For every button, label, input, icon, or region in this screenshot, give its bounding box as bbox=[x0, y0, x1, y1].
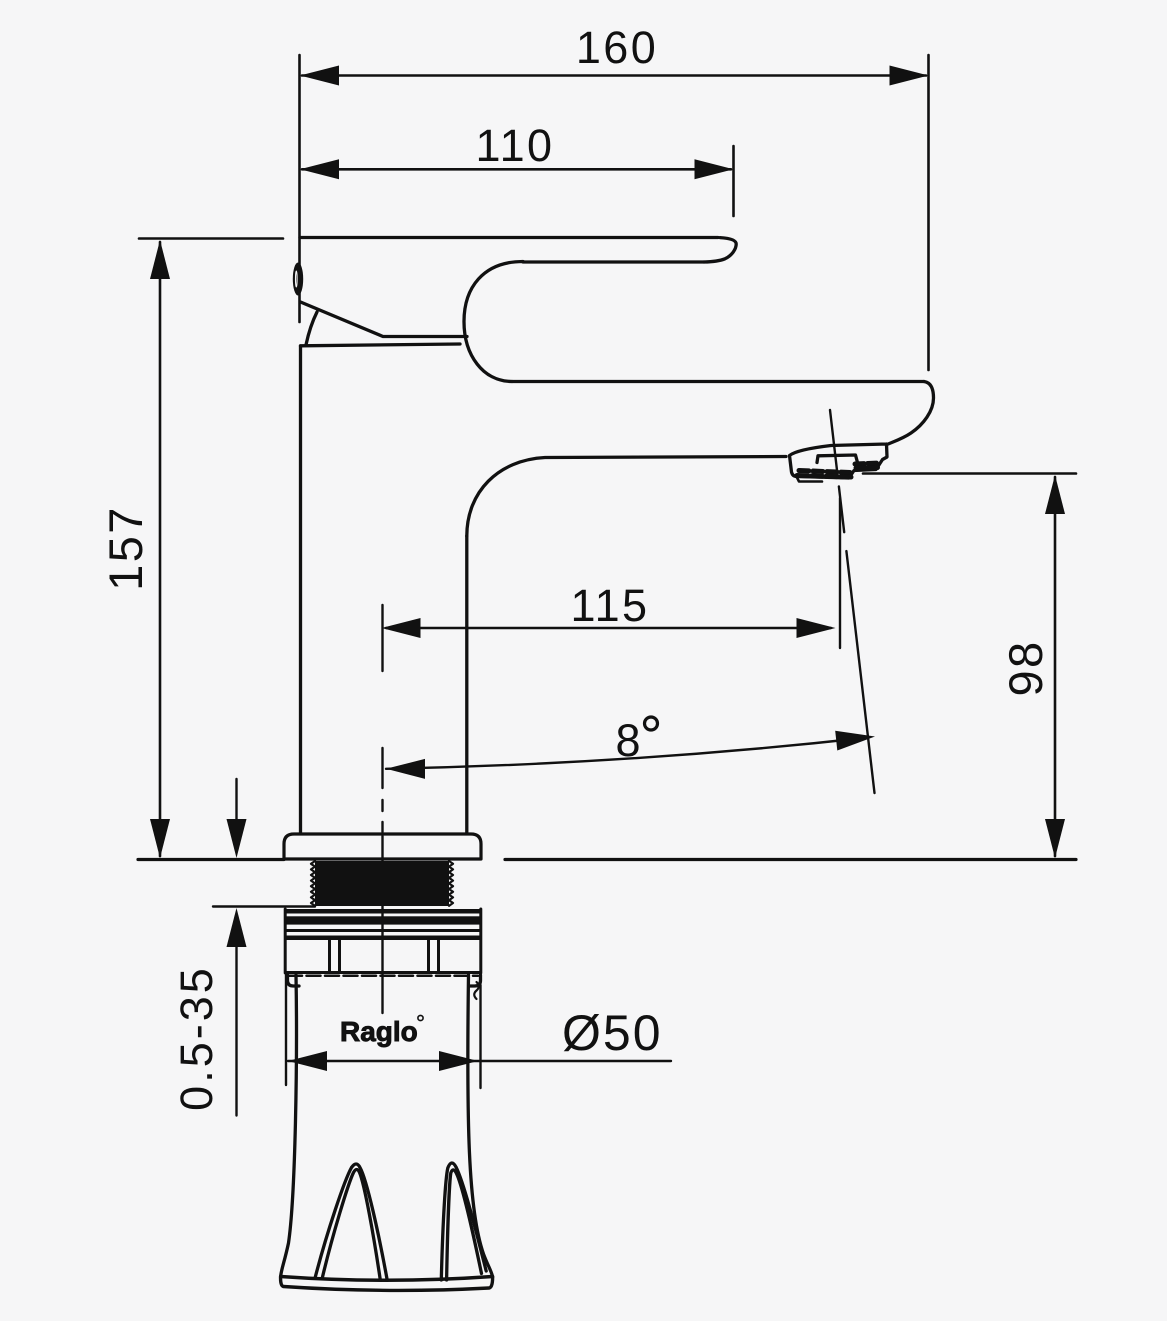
svg-text:157: 157 bbox=[99, 505, 152, 591]
svg-text:Ø50: Ø50 bbox=[562, 1005, 663, 1061]
svg-text:8: 8 bbox=[615, 715, 640, 766]
svg-text:98: 98 bbox=[999, 639, 1052, 696]
svg-text:110: 110 bbox=[476, 120, 555, 171]
svg-text:160: 160 bbox=[576, 22, 658, 73]
svg-text:0.5-35: 0.5-35 bbox=[171, 965, 222, 1111]
svg-text:115: 115 bbox=[571, 580, 650, 631]
svg-text:Raglo: Raglo bbox=[340, 1016, 418, 1047]
